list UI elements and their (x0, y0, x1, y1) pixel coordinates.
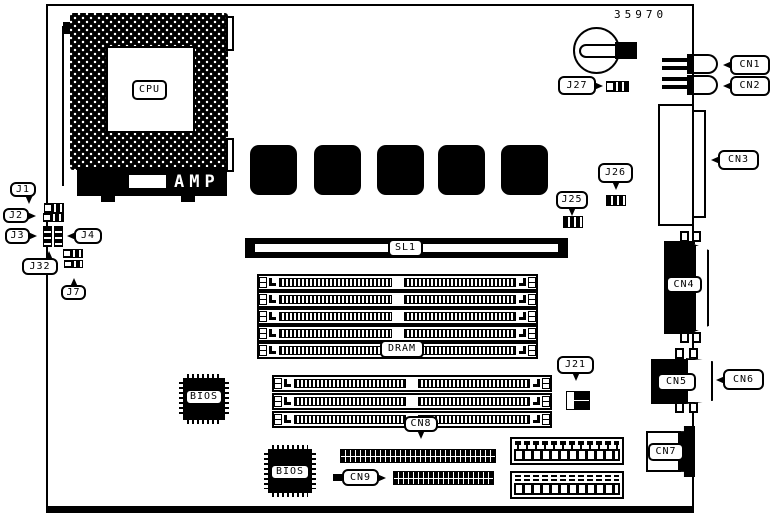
amp-bar-foot (181, 196, 195, 202)
cn2-pin (662, 77, 690, 81)
callout-j2: J2 (3, 208, 29, 223)
memory-slot (257, 274, 538, 291)
memory-slot (272, 393, 552, 410)
battery-clip-end (615, 42, 637, 59)
jumper-j1 (44, 203, 64, 213)
cpu-label: CPU (132, 80, 167, 100)
memory-slot (272, 375, 552, 392)
callout-cn2: CN2 (730, 76, 770, 96)
jumper-j7 (64, 260, 83, 268)
jumper-j21 (566, 391, 590, 410)
callout-j3: J3 (5, 228, 30, 244)
callout-j1: J1 (10, 182, 36, 197)
memory-slot (257, 308, 538, 325)
power-connector (510, 437, 624, 465)
callout-cn1: CN1 (730, 55, 770, 75)
cn5-post (689, 348, 698, 359)
dram-label: DRAM (380, 340, 424, 358)
cn2-pin (662, 85, 690, 89)
callout-cn6: CN6 (723, 369, 764, 390)
jumper-j27 (606, 81, 629, 92)
callout-cn8: CN8 (404, 416, 438, 432)
amp-bar-window (129, 175, 166, 188)
callout-j7: J7 (61, 285, 86, 300)
callout-cn3: CN3 (718, 150, 759, 170)
callout-j27: J27 (558, 76, 596, 95)
chip-square (314, 145, 361, 195)
cn3-connector-body (658, 104, 694, 226)
chip-square (377, 145, 424, 195)
board-bottom-edge (46, 506, 694, 513)
cn1-pin (662, 58, 690, 62)
callout-cn9: CN9 (342, 469, 379, 486)
cpu-socket-tab-top (226, 16, 234, 51)
chip-square (501, 145, 548, 195)
jumper-j25 (563, 216, 583, 228)
jumper-j2 (43, 213, 64, 222)
cn5-post (675, 348, 684, 359)
jumper-j32 (63, 249, 83, 258)
cn4-label: CN4 (666, 276, 702, 293)
cpu-socket-bracket (62, 26, 64, 186)
memory-slot (257, 291, 538, 308)
cn1-pin (662, 66, 690, 70)
cn5-post (689, 402, 698, 413)
callout-j32: J32 (22, 258, 58, 275)
chip-square (250, 145, 297, 195)
cn3-connector-outer (692, 110, 706, 218)
cn1-connector (687, 54, 718, 74)
callout-j26: J26 (598, 163, 633, 183)
power-connector (510, 471, 624, 499)
amp-bar-foot (101, 196, 115, 202)
chip-square (438, 145, 485, 195)
cn9-pin-tab (333, 474, 342, 481)
bios-label: BIOS (270, 464, 310, 480)
cpu-socket-tab-bottom (226, 138, 234, 172)
cpu-brand-label: AMP (174, 172, 220, 192)
cn2-connector (687, 75, 718, 95)
callout-j21: J21 (557, 356, 594, 374)
cn5-label: CN5 (657, 373, 696, 391)
jumper-j3 (43, 226, 52, 247)
cpu-retention-bar: AMP (77, 167, 227, 196)
bios-label: BIOS (185, 389, 223, 405)
callout-j4: J4 (74, 228, 102, 244)
callout-j25: J25 (556, 191, 588, 209)
sl1-label: SL1 (388, 239, 423, 257)
jumper-j26 (606, 195, 626, 206)
cn8-header (340, 449, 496, 463)
motherboard-diagram: 35970 CPU AMP J27 CN1 CN2 CN3 CN4 (0, 0, 771, 519)
cn9-header (393, 471, 494, 485)
jumper-j4 (54, 226, 63, 247)
cn7-label: CN7 (648, 443, 684, 461)
part-number: 35970 (614, 8, 667, 21)
